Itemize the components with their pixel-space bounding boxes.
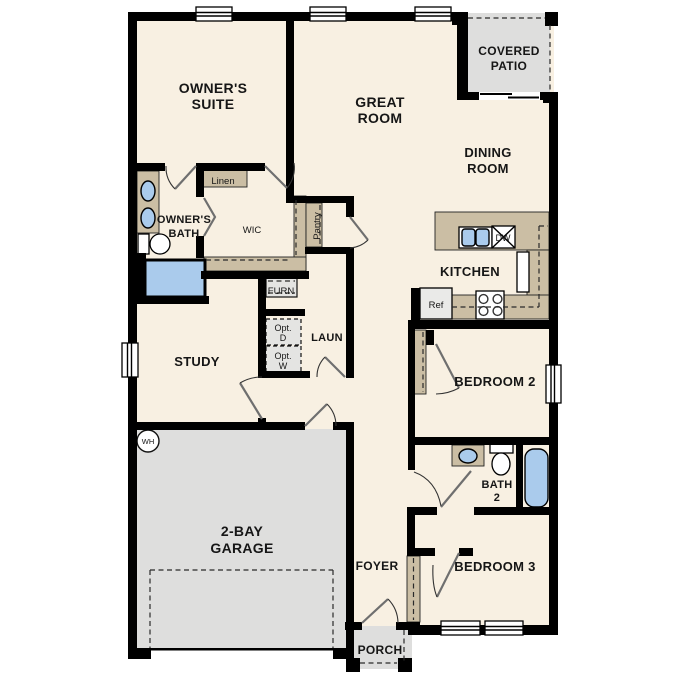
wall-ref-left	[411, 288, 420, 320]
wall-porch-corner-right	[398, 658, 412, 672]
window	[485, 621, 523, 635]
label-bedroom2: BEDROOM 2	[454, 374, 535, 389]
wall-closet-cap	[426, 330, 434, 345]
garage-door-line	[150, 648, 333, 651]
wall-study-top	[137, 296, 209, 304]
bath2-toilet-bowl	[492, 453, 510, 475]
kitchen-sink-basin-left	[462, 229, 475, 246]
wall-patio-corner-tr	[545, 12, 558, 26]
wall-foyer-bottom-left	[345, 622, 362, 630]
wall-bedroom3-door-jamb	[459, 548, 473, 556]
wall-garage-stub-right	[333, 648, 353, 659]
wall-bedroom2-top	[408, 320, 549, 329]
wall-bath-wic-1	[196, 171, 204, 197]
burner	[479, 295, 488, 304]
window	[196, 7, 232, 21]
burner	[479, 307, 488, 316]
label-kitchen: KITCHEN	[440, 264, 500, 279]
wall-bedroom3-bottom	[408, 625, 558, 635]
window	[310, 7, 346, 21]
label-pantry: Pantry	[312, 212, 323, 240]
wall-laundry-bottom	[258, 371, 310, 378]
label-study: STUDY	[174, 354, 220, 369]
wall-garage-stub-left	[128, 648, 151, 659]
vanity-sink	[141, 181, 155, 201]
label-water-heater: WH	[142, 437, 155, 446]
kitchen-sink-basin-right	[476, 229, 489, 246]
label-linen: Linen	[211, 176, 234, 187]
counter-appliance	[517, 252, 529, 292]
wall-hall-bedroom2	[408, 329, 415, 470]
wall-exterior-right	[549, 92, 558, 635]
wall-spine-top	[346, 203, 354, 217]
burner	[493, 295, 502, 304]
window	[441, 621, 480, 635]
label-dishwasher: DW	[496, 233, 511, 243]
label-bedroom3: BEDROOM 3	[454, 559, 535, 574]
floor-plan: OWNER'SSUITE GREATROOM COVEREDPATIO DINI…	[0, 0, 687, 687]
wall-suite-bottom-2	[196, 163, 265, 171]
bedroom2-closet	[414, 330, 426, 394]
vanity-sink	[141, 208, 155, 228]
floor-plan-canvas: OWNER'SSUITE GREATROOM COVEREDPATIO DINI…	[0, 0, 687, 687]
wall-exterior-left	[128, 12, 137, 659]
wall-shower-left	[137, 253, 146, 300]
wall-pantry-top	[290, 196, 354, 203]
sliding-door	[479, 92, 540, 100]
window	[546, 365, 561, 403]
bath2-tub	[525, 449, 548, 507]
wall-patio-bottom-left	[457, 92, 479, 100]
wall-foyer-bedroom3	[407, 507, 415, 550]
label-great-room: GREATROOM	[355, 94, 405, 126]
wall-suite-bottom-1	[137, 163, 165, 171]
bath2-toilet-tank	[490, 444, 513, 453]
label-furnace: FURN	[268, 286, 295, 297]
wall-below-wic	[201, 271, 309, 279]
wic-shelf-bottom	[204, 257, 306, 271]
wall-tub-left	[516, 445, 523, 515]
burner	[493, 307, 502, 316]
window	[122, 343, 138, 377]
label-laundry: LAUN	[311, 332, 343, 344]
shower	[145, 260, 205, 297]
label-wic: WIC	[243, 225, 262, 236]
label-dining-room: DININGROOM	[464, 145, 511, 176]
wall-bedroom2-bath2	[408, 437, 549, 445]
wall-furn-bottom	[258, 309, 305, 316]
wall-study-right-1	[258, 278, 266, 378]
wall-bath2-bottom-right	[474, 507, 558, 515]
toilet-bowl	[150, 234, 170, 254]
wall-spine-mid	[346, 249, 354, 378]
label-foyer: FOYER	[356, 559, 399, 573]
wall-garage-top-left	[128, 422, 305, 430]
window	[415, 7, 451, 21]
garage-floor	[137, 429, 347, 649]
wall-bedroom3-closet-top	[407, 548, 435, 556]
wall-porch-corner-left	[346, 658, 360, 672]
bath2-sink	[459, 449, 477, 463]
label-porch: PORCH	[358, 643, 403, 657]
wall-patio-left	[457, 13, 468, 100]
toilet-tank	[138, 234, 149, 254]
label-refrigerator: Ref	[429, 300, 444, 311]
wall-suite-great	[286, 21, 294, 203]
